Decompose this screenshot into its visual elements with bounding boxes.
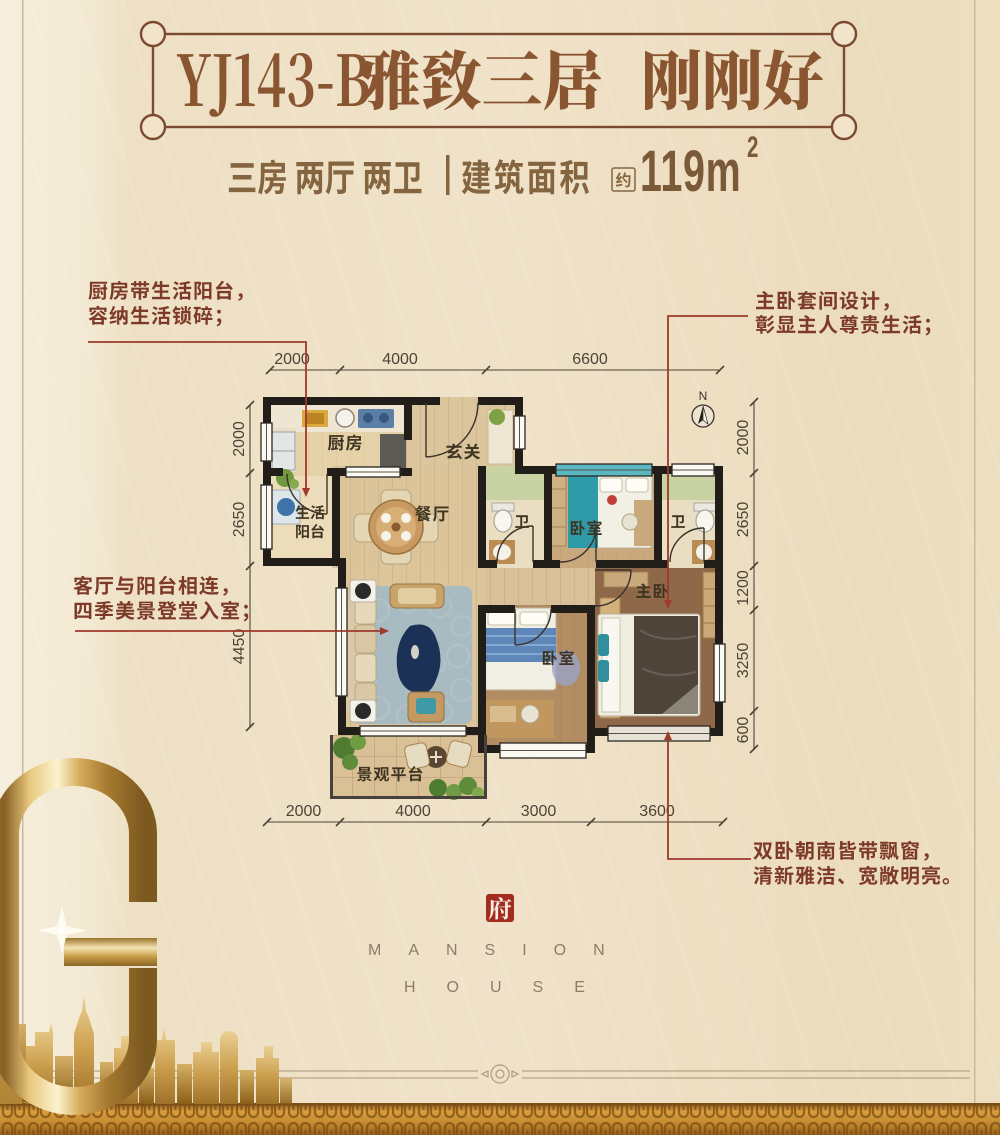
svg-text:HOUSE: HOUSE bbox=[404, 979, 616, 996]
svg-text:2000: 2000 bbox=[274, 351, 310, 368]
svg-text:119m: 119m bbox=[640, 138, 741, 203]
svg-text:3000: 3000 bbox=[521, 803, 557, 820]
svg-text:4000: 4000 bbox=[382, 351, 418, 368]
svg-text:600: 600 bbox=[735, 717, 752, 744]
svg-text:4450: 4450 bbox=[231, 629, 248, 665]
svg-text:6600: 6600 bbox=[572, 351, 608, 368]
svg-text:4000: 4000 bbox=[395, 803, 431, 820]
svg-text:3250: 3250 bbox=[735, 643, 752, 679]
svg-text:2650: 2650 bbox=[231, 502, 248, 538]
svg-text:2000: 2000 bbox=[286, 803, 322, 820]
svg-text:2000: 2000 bbox=[231, 421, 248, 457]
svg-text:2000: 2000 bbox=[735, 420, 752, 456]
svg-text:N: N bbox=[699, 389, 708, 403]
svg-text:2: 2 bbox=[747, 131, 758, 164]
svg-text:3600: 3600 bbox=[639, 803, 675, 820]
svg-text:MANSION: MANSION bbox=[368, 942, 632, 959]
svg-text:1200: 1200 bbox=[735, 570, 752, 606]
svg-text:2650: 2650 bbox=[735, 502, 752, 538]
